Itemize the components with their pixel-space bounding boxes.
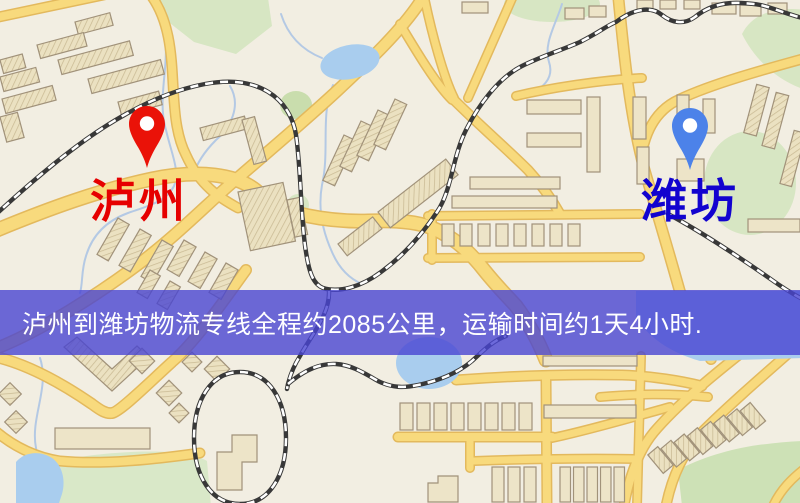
destination-pin-hole [683,118,697,132]
destination-city-label: 潍坊 [641,176,739,227]
origin-pin-hole [140,116,154,130]
logistics-route-map: 泸州 潍坊 泸州到潍坊物流专线全程约2085公里，运输时间约1天4小时. [0,0,800,503]
route-info-banner: 泸州到潍坊物流专线全程约2085公里，运输时间约1天4小时. [0,290,800,355]
origin-city-label: 泸州 [90,176,188,227]
route-info-text: 泸州到潍坊物流专线全程约2085公里，运输时间约1天4小时. [22,305,702,341]
map-image: 泸州 潍坊 [0,0,800,503]
